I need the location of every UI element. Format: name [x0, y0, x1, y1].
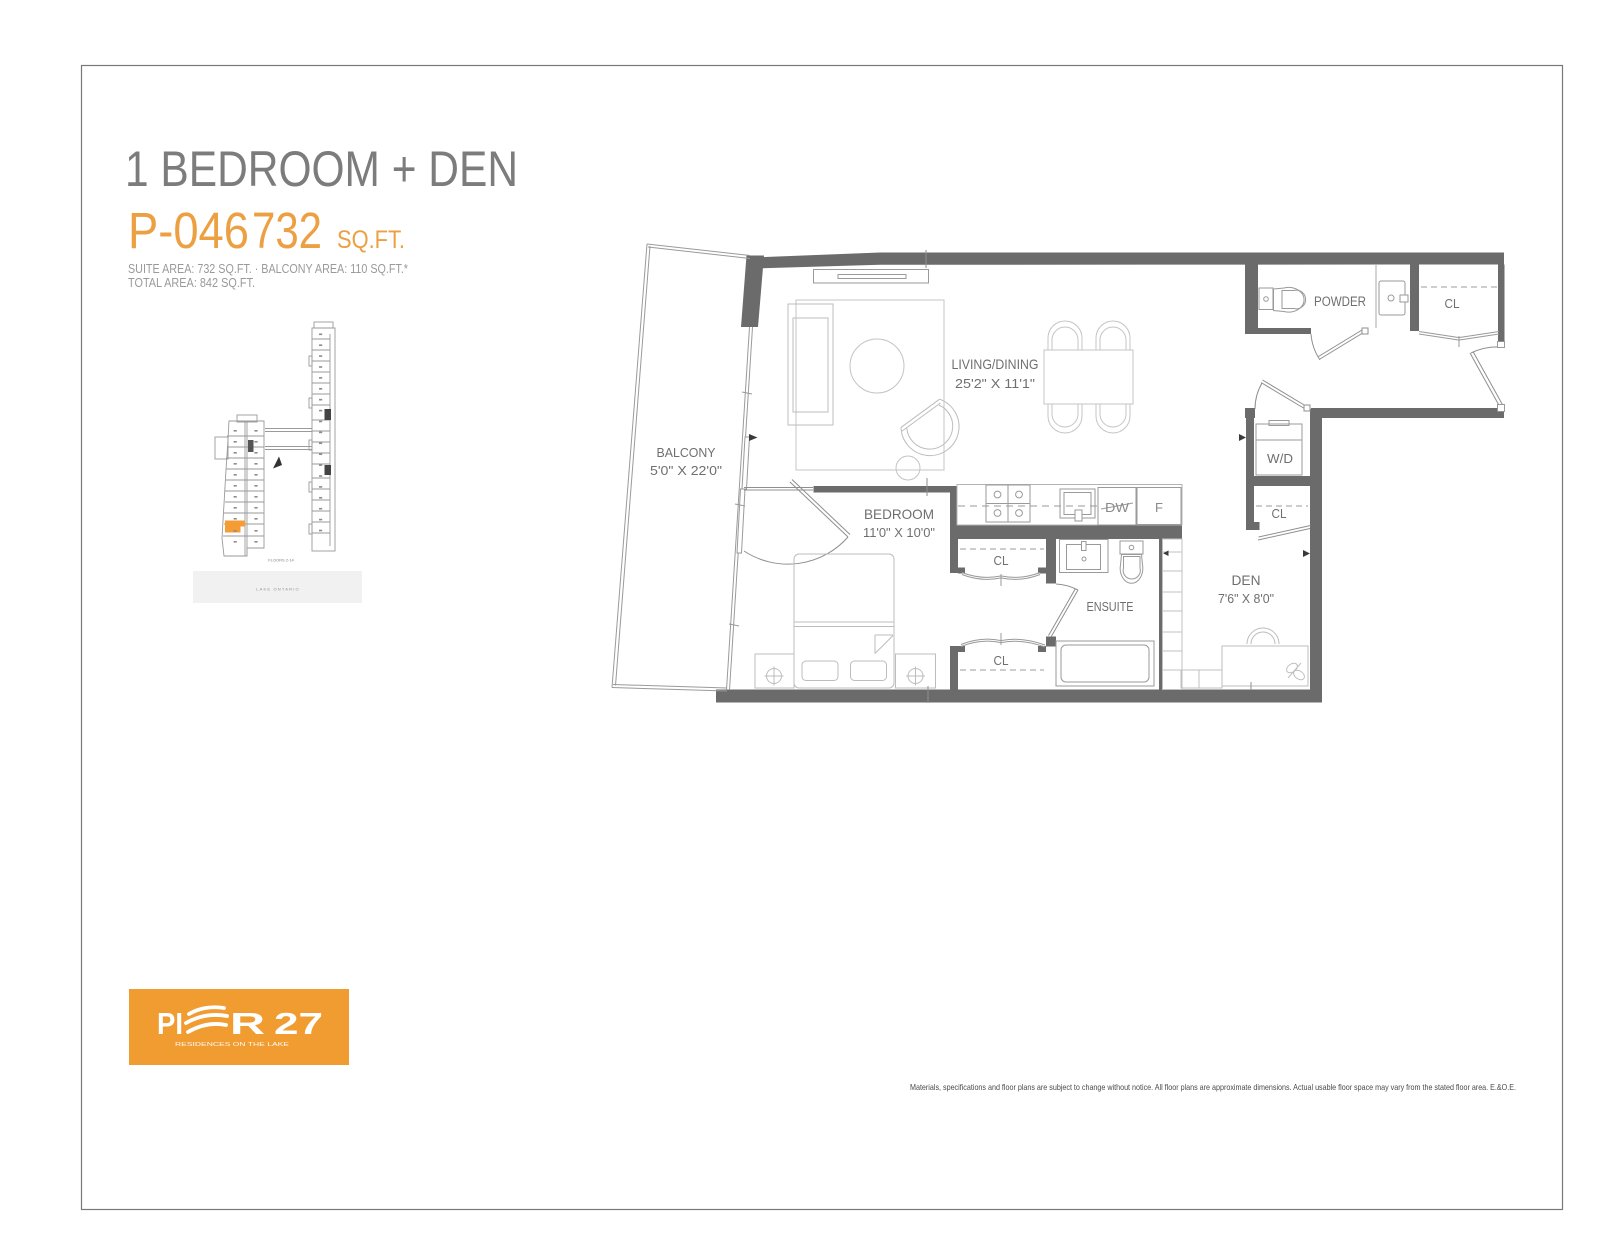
svg-text:27: 27	[274, 1006, 323, 1041]
svg-text:POWDER: POWDER	[1314, 294, 1366, 309]
svg-text:7'6" X 8'0": 7'6" X 8'0"	[1218, 592, 1274, 606]
svg-text:1 BEDROOM + DEN: 1 BEDROOM + DEN	[125, 141, 518, 197]
svg-text:CL: CL	[994, 554, 1009, 568]
svg-text:DEN: DEN	[1232, 572, 1261, 588]
svg-text:Materials, specifications and: Materials, specifications and floor plan…	[910, 1083, 1516, 1092]
svg-text:BALCONY: BALCONY	[657, 445, 716, 460]
svg-text:SQ.FT.: SQ.FT.	[337, 226, 405, 254]
svg-text:W/D: W/D	[1267, 452, 1293, 466]
svg-text:R: R	[230, 1006, 265, 1041]
svg-text:SUITE AREA: 732 SQ.FT. · BALCO: SUITE AREA: 732 SQ.FT. · BALCONY AREA: 1…	[128, 262, 408, 276]
svg-text:25'2" X 11'1": 25'2" X 11'1"	[955, 377, 1035, 391]
svg-text:LAKE ONTARIO: LAKE ONTARIO	[256, 587, 300, 592]
svg-text:CL: CL	[994, 654, 1009, 668]
svg-text:DW: DW	[1105, 500, 1130, 515]
svg-text:P-046: P-046	[128, 202, 249, 259]
svg-text:F: F	[1155, 500, 1163, 515]
svg-text:BEDROOM: BEDROOM	[864, 506, 934, 522]
svg-text:11'0" X 10'0": 11'0" X 10'0"	[863, 526, 935, 540]
svg-text:5'0" X 22'0": 5'0" X 22'0"	[650, 464, 722, 478]
svg-text:RESIDENCES ON THE LAKE: RESIDENCES ON THE LAKE	[175, 1042, 289, 1048]
svg-text:CL: CL	[1445, 297, 1460, 311]
svg-text:CL: CL	[1272, 507, 1287, 521]
svg-text:FLOORS 2-14: FLOORS 2-14	[268, 558, 294, 563]
svg-text:LIVING/DINING: LIVING/DINING	[952, 356, 1039, 372]
svg-text:TOTAL AREA: 842 SQ.FT.: TOTAL AREA: 842 SQ.FT.	[128, 276, 255, 290]
svg-text:PI: PI	[157, 1006, 183, 1041]
svg-text:732: 732	[252, 202, 322, 259]
svg-text:ENSUITE: ENSUITE	[1087, 599, 1134, 614]
